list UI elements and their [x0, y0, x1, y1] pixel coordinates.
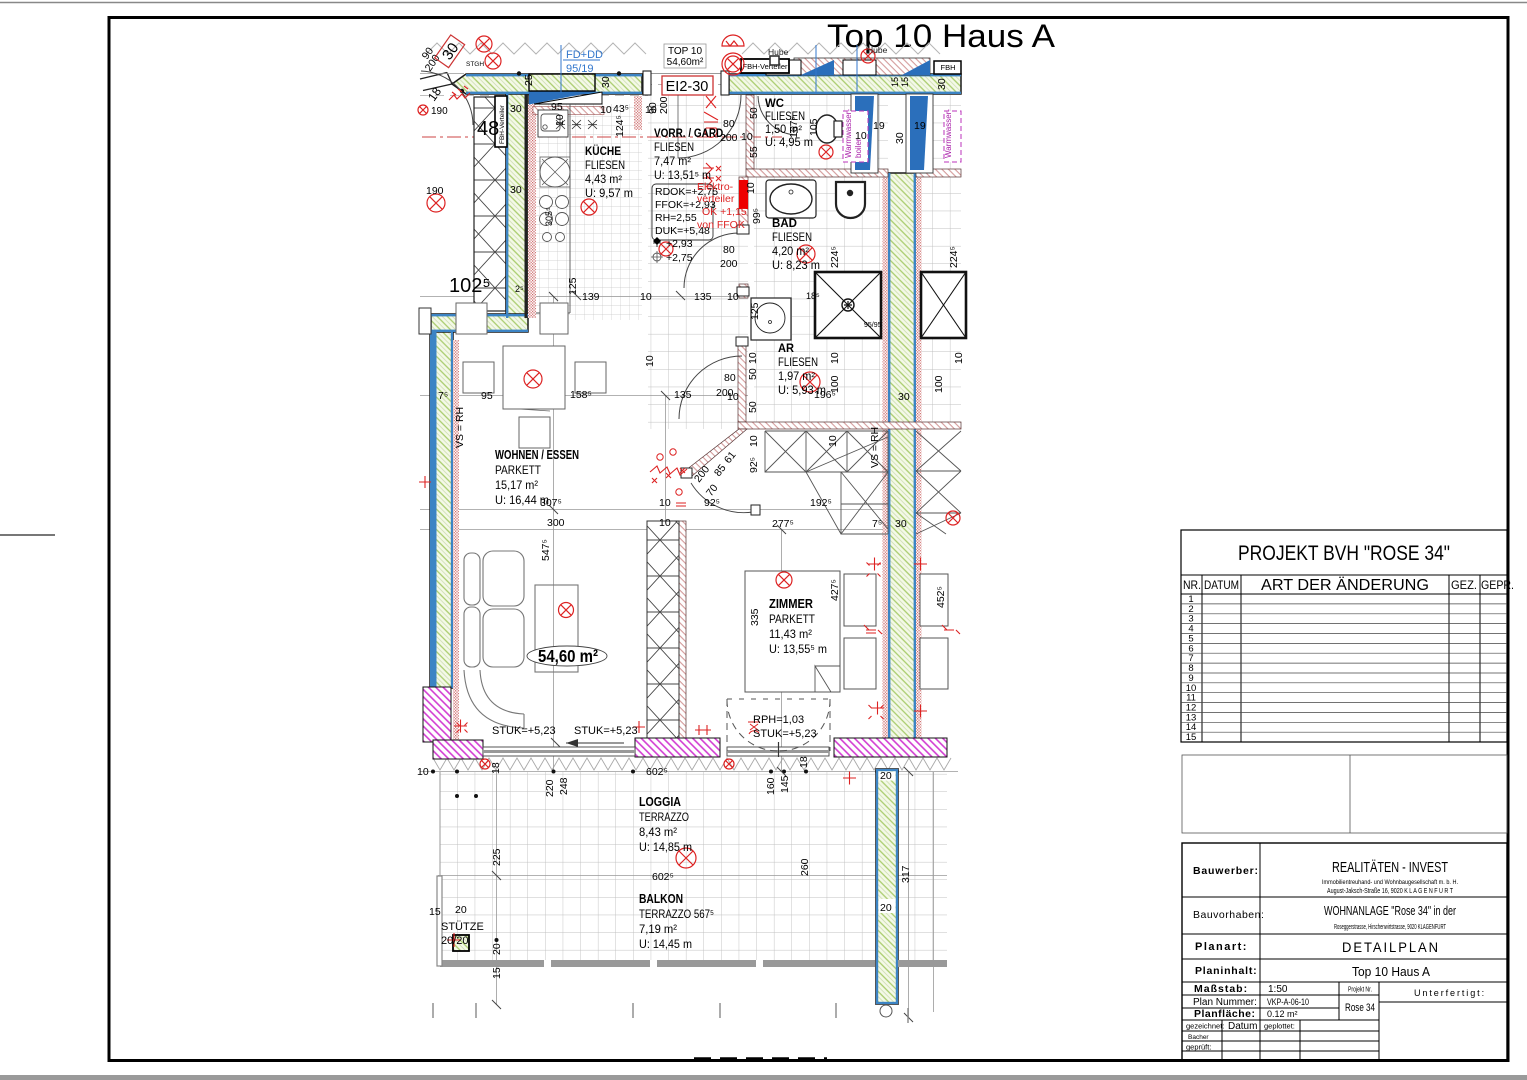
svg-text:317: 317 [900, 865, 912, 883]
svg-text:Top 10 Haus A: Top 10 Haus A [1352, 964, 1430, 979]
svg-text:602⁵: 602⁵ [646, 766, 668, 778]
svg-text:20: 20 [491, 943, 503, 955]
svg-text:100: 100 [829, 375, 841, 393]
svg-text:WC: WC [765, 96, 784, 110]
svg-text:30: 30 [894, 132, 906, 144]
svg-text:190: 190 [431, 106, 448, 117]
svg-text:Bauvorhaben:: Bauvorhaben: [1193, 909, 1264, 921]
svg-text:Elektro-: Elektro- [697, 181, 734, 193]
svg-text:Planfläche:: Planfläche: [1194, 1008, 1256, 1020]
svg-text:STUK=+5,23: STUK=+5,23 [753, 728, 817, 740]
svg-text:260: 260 [799, 858, 811, 876]
svg-text:99⁵: 99⁵ [751, 208, 763, 224]
svg-text:427⁵: 427⁵ [829, 579, 841, 601]
svg-text:1,97 m²: 1,97 m² [778, 371, 815, 383]
svg-text:10: 10 [827, 435, 839, 447]
svg-text:4,43 m²: 4,43 m² [585, 174, 622, 186]
svg-text:KÜCHE: KÜCHE [585, 143, 621, 158]
svg-text:LOGGIA: LOGGIA [639, 795, 681, 809]
svg-text:80: 80 [724, 372, 736, 384]
svg-text:25: 25 [523, 74, 535, 86]
svg-text:TERRAZZO: TERRAZZO [639, 810, 689, 824]
svg-text:102⁵: 102⁵ [449, 275, 491, 297]
svg-text:STÜTZE: STÜTZE [441, 921, 484, 933]
svg-text:95: 95 [481, 390, 493, 402]
svg-text:10: 10 [554, 114, 566, 126]
svg-text:602⁵: 602⁵ [652, 871, 674, 883]
svg-text:30: 30 [936, 78, 948, 90]
svg-text:gezeichnet:: gezeichnet: [1186, 1022, 1224, 1031]
svg-text:452⁵: 452⁵ [935, 586, 947, 608]
svg-text:2⁵: 2⁵ [515, 284, 524, 294]
svg-text:U: 14,85 m: U: 14,85 m [639, 840, 692, 854]
svg-text:15: 15 [900, 77, 910, 87]
svg-text:547⁵: 547⁵ [540, 539, 552, 561]
svg-text:RH=2,55: RH=2,55 [655, 212, 697, 224]
svg-text:20/20: 20/20 [441, 935, 469, 947]
svg-text:48: 48 [477, 118, 499, 140]
svg-text:DETAILPLAN: DETAILPLAN [1342, 940, 1440, 955]
svg-text:277⁵: 277⁵ [772, 518, 794, 530]
svg-text:15: 15 [429, 906, 441, 918]
svg-text:167⁵: 167⁵ [788, 116, 800, 138]
svg-text:DATUM: DATUM [1204, 578, 1239, 592]
svg-text:ZIMMER: ZIMMER [769, 597, 813, 611]
svg-text:54,60m²: 54,60m² [667, 57, 704, 68]
svg-text:30: 30 [510, 184, 522, 196]
svg-text:PARKETT: PARKETT [769, 612, 816, 626]
svg-text:+2,93: +2,93 [666, 238, 693, 250]
svg-text:STUK=+5,23: STUK=+5,23 [492, 725, 556, 737]
svg-text:335: 335 [749, 608, 761, 626]
svg-text:10: 10 [640, 291, 652, 303]
svg-text:200: 200 [720, 258, 738, 270]
svg-text:125: 125 [567, 277, 579, 295]
svg-text:Bacher: Bacher [1188, 1034, 1209, 1041]
svg-text:95/95: 95/95 [864, 322, 882, 329]
svg-text:92⁵: 92⁵ [748, 457, 760, 473]
svg-text:139: 139 [582, 291, 600, 303]
svg-text:225: 225 [491, 848, 503, 866]
svg-text:10: 10 [727, 391, 739, 403]
svg-text:10: 10 [741, 131, 753, 143]
svg-text:NR.: NR. [1183, 578, 1201, 592]
svg-text:158⁵: 158⁵ [570, 389, 592, 401]
svg-text:10: 10 [659, 497, 671, 509]
svg-text:8,43 m²: 8,43 m² [639, 825, 677, 839]
svg-text:STUK=+5,23: STUK=+5,23 [574, 725, 638, 737]
svg-text:18⁵: 18⁵ [806, 291, 820, 301]
svg-text:4,20 m²: 4,20 m² [772, 246, 809, 258]
svg-text:Rose 34: Rose 34 [1345, 1002, 1375, 1014]
svg-text:FLIESEN: FLIESEN [654, 142, 694, 154]
svg-text:192⁵: 192⁵ [810, 497, 832, 509]
svg-text:VORR. / GARD.: VORR. / GARD. [654, 126, 726, 140]
svg-text:ART DER ÄNDERUNG: ART DER ÄNDERUNG [1261, 577, 1429, 594]
svg-text:REALITÄTEN - INVEST: REALITÄTEN - INVEST [1332, 859, 1448, 876]
svg-text:125: 125 [749, 302, 761, 320]
svg-text:10: 10 [748, 435, 760, 447]
svg-text:15: 15 [491, 967, 503, 979]
svg-text:U: 9,57 m: U: 9,57 m [585, 188, 633, 200]
svg-text:30: 30 [600, 76, 612, 88]
svg-text:20: 20 [880, 902, 892, 914]
svg-text:WOHNANLAGE "Rose 34" in der: WOHNANLAGE "Rose 34" in der [1324, 904, 1456, 918]
svg-text:U: 14,45 m: U: 14,45 m [639, 937, 692, 951]
svg-text:20: 20 [880, 770, 892, 782]
svg-text:0.12 m²: 0.12 m² [1267, 1009, 1298, 1019]
svg-text:Planinhalt:: Planinhalt: [1195, 965, 1257, 977]
svg-text:30: 30 [510, 103, 522, 115]
svg-text:54,60 m²: 54,60 m² [538, 646, 598, 666]
svg-text:10: 10 [747, 352, 759, 364]
svg-text:224⁵: 224⁵ [829, 246, 841, 268]
svg-text:Bauwerber:: Bauwerber: [1193, 865, 1259, 877]
svg-text:GEPR.: GEPR. [1481, 578, 1514, 592]
svg-text:30: 30 [898, 391, 910, 403]
svg-text:15: 15 [890, 77, 900, 87]
svg-text:10: 10 [829, 352, 841, 364]
svg-text:200: 200 [658, 96, 670, 114]
svg-text:Maßstab:: Maßstab: [1194, 983, 1248, 995]
svg-text:BALKON: BALKON [639, 892, 683, 906]
svg-text:FLIESEN: FLIESEN [585, 160, 625, 172]
svg-text:PROJEKT BVH "ROSE 34": PROJEKT BVH "ROSE 34" [1238, 542, 1450, 565]
svg-text:10: 10 [659, 517, 671, 529]
svg-text:124⁵: 124⁵ [614, 115, 626, 137]
svg-text:Planart:: Planart: [1195, 941, 1248, 953]
svg-text:200: 200 [720, 132, 738, 144]
svg-text:248: 248 [558, 777, 570, 795]
svg-text:August-Jaksch-Straße 16, 9020: August-Jaksch-Straße 16, 9020 K L A G E … [1327, 886, 1453, 895]
svg-text:Immobilientreuhand- und Wohnba: Immobilientreuhand- und Wohnbaugesellsch… [1322, 879, 1458, 886]
svg-text:AR: AR [778, 341, 794, 355]
svg-text:TOP 10: TOP 10 [668, 46, 703, 57]
svg-text:10: 10 [953, 352, 965, 364]
svg-text:PARKETT: PARKETT [495, 463, 542, 477]
svg-text:TERRAZZO 567⁵: TERRAZZO 567⁵ [639, 907, 714, 921]
svg-text:+2,75: +2,75 [666, 252, 693, 264]
svg-text:Top 10 Haus A: Top 10 Haus A [827, 18, 1056, 54]
svg-text:10: 10 [644, 355, 656, 367]
svg-text:RPH=1,03: RPH=1,03 [753, 714, 804, 726]
svg-text:10: 10 [417, 766, 429, 778]
svg-text:224⁵: 224⁵ [948, 246, 960, 268]
svg-text:VKP-A-06-10: VKP-A-06-10 [1267, 997, 1309, 1008]
svg-text:10: 10 [600, 104, 612, 116]
svg-text:Roseggerstrasse, Hirschenwirts: Roseggerstrasse, Hirschenwirtstrasse, 90… [1334, 924, 1446, 931]
svg-text:1:50: 1:50 [1268, 984, 1288, 995]
svg-text:15: 15 [1186, 732, 1197, 743]
svg-text:Hube: Hube [867, 45, 888, 55]
svg-text:145: 145 [779, 775, 791, 793]
svg-text:FLIESEN: FLIESEN [778, 357, 818, 369]
svg-text:EI2-30: EI2-30 [666, 79, 709, 95]
svg-text:geprüft:: geprüft: [1186, 1043, 1211, 1052]
svg-text:300: 300 [547, 517, 565, 529]
svg-text:160: 160 [765, 777, 777, 795]
svg-text:VS = RH: VS = RH [869, 427, 881, 468]
svg-text:135: 135 [674, 389, 692, 401]
svg-text:220: 220 [544, 779, 556, 797]
svg-text:WOHNEN / ESSEN: WOHNEN / ESSEN [495, 448, 579, 462]
svg-text:7,47 m²: 7,47 m² [654, 156, 691, 168]
svg-text:50: 50 [748, 107, 760, 119]
svg-text:55: 55 [748, 146, 760, 158]
svg-text:100: 100 [933, 375, 945, 393]
svg-text:20: 20 [455, 904, 467, 916]
svg-text:80: 80 [723, 244, 735, 256]
svg-text:19: 19 [873, 120, 885, 132]
svg-text:U: 13,55⁵ m: U: 13,55⁵ m [769, 642, 827, 656]
svg-text:7,19 m²: 7,19 m² [639, 922, 677, 936]
svg-text:U: 8,23 m: U: 8,23 m [772, 260, 820, 272]
svg-text:Datum: Datum [1228, 1021, 1257, 1032]
svg-text:50: 50 [747, 401, 759, 413]
svg-text:geplottet:: geplottet: [1264, 1022, 1295, 1031]
svg-text:80: 80 [723, 118, 735, 130]
svg-text:FBH: FBH [941, 63, 956, 72]
svg-text:Hube: Hube [768, 47, 789, 57]
svg-text:verteiler: verteiler [697, 193, 735, 205]
svg-text:15,17 m²: 15,17 m² [495, 478, 538, 492]
svg-text:10: 10 [855, 130, 867, 142]
svg-text:Projekt Nr.: Projekt Nr. [1348, 985, 1372, 994]
svg-text:10: 10 [727, 291, 739, 303]
svg-text:7⁵: 7⁵ [438, 390, 448, 402]
svg-text:GEZ.: GEZ. [1451, 578, 1477, 592]
svg-text:BAD: BAD [772, 216, 797, 230]
svg-text:Warmwasser-: Warmwasser- [844, 109, 853, 158]
svg-text:FBH-Verteiler: FBH-Verteiler [499, 104, 506, 144]
svg-text:43⁵: 43⁵ [613, 103, 629, 115]
svg-text:95: 95 [551, 101, 563, 113]
svg-text:10: 10 [745, 182, 757, 194]
svg-text:VS = RH: VS = RH [454, 407, 466, 448]
svg-text:135: 135 [694, 291, 712, 303]
svg-text:11,43 m²: 11,43 m² [769, 627, 812, 641]
svg-text:305⁵: 305⁵ [544, 207, 554, 226]
svg-text:307⁵: 307⁵ [540, 497, 562, 509]
svg-text:FLIESEN: FLIESEN [772, 232, 812, 244]
svg-text:50: 50 [747, 368, 759, 380]
svg-text:FBH-Verteiler: FBH-Verteiler [742, 62, 788, 71]
svg-text:STGH: STGH [466, 61, 484, 68]
svg-text:von FFOK: von FFOK [697, 219, 745, 231]
svg-text:95/19: 95/19 [566, 63, 594, 75]
svg-text:30: 30 [895, 518, 907, 530]
svg-text:Plan Nummer:: Plan Nummer: [1193, 997, 1257, 1008]
svg-text:OK +1,15: OK +1,15 [702, 206, 747, 218]
svg-text:Unterfertigt:: Unterfertigt: [1414, 988, 1486, 999]
svg-text:190: 190 [426, 185, 444, 197]
svg-text:18: 18 [798, 756, 810, 768]
svg-text:105: 105 [808, 118, 820, 136]
svg-text:FD+DD: FD+DD [566, 49, 603, 61]
svg-text:19: 19 [914, 120, 926, 132]
svg-text:Warmwasser-: Warmwasser- [944, 109, 953, 158]
svg-text:7⁵: 7⁵ [872, 518, 882, 530]
svg-text:18: 18 [490, 762, 502, 774]
